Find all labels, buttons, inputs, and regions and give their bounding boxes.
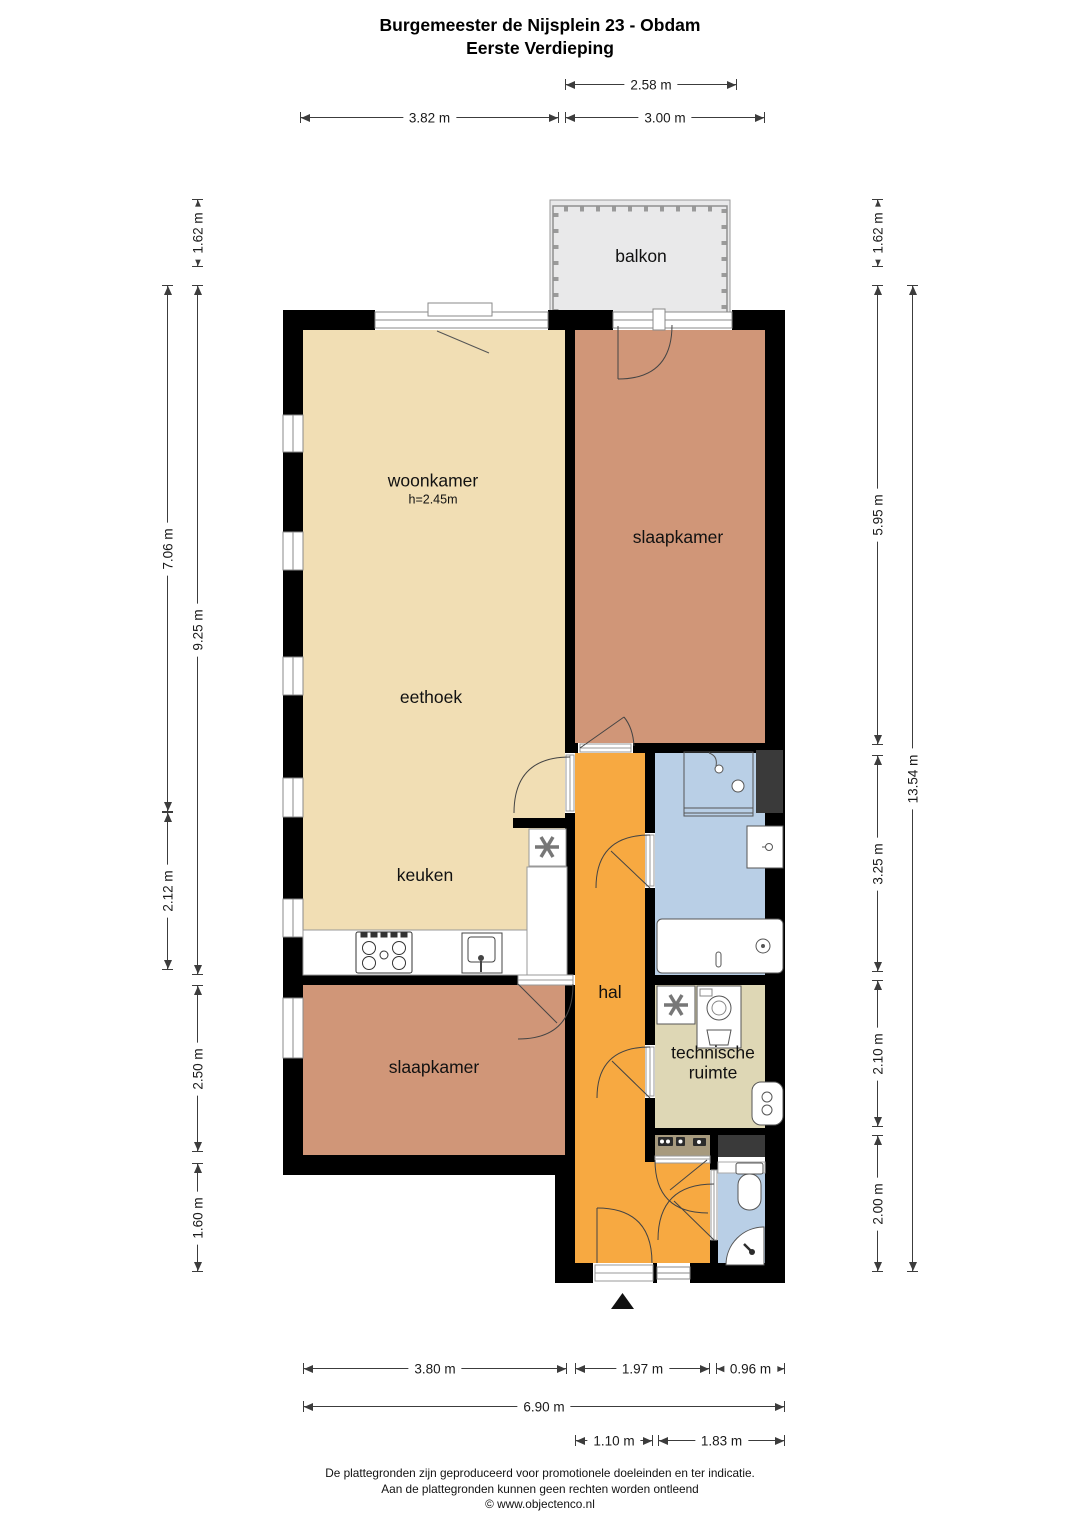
footer-disclaimer: De plattegronden zijn geproduceerd voor … xyxy=(0,1466,1080,1513)
meter-cupboard-icons xyxy=(658,1137,706,1146)
shaft-badkamer xyxy=(756,750,783,813)
entrance-arrow-icon xyxy=(611,1293,634,1309)
room-balkon-fill xyxy=(550,200,730,315)
footer-line-1: De plattegronden zijn geproduceerd voor … xyxy=(0,1466,1080,1482)
bathtub-icon xyxy=(657,919,783,973)
room-hal-fill xyxy=(575,753,645,1263)
room-slaapkamer2-fill xyxy=(303,985,565,1155)
boiler-icon xyxy=(752,1082,783,1125)
ventilation-icon-tech xyxy=(657,986,695,1024)
shaft-meterkast xyxy=(718,1135,765,1157)
sink-icon xyxy=(462,933,502,973)
room-slaapkamer1-fill xyxy=(575,330,765,743)
balcony xyxy=(550,200,730,315)
room-fills xyxy=(303,330,765,1263)
washbasin-icon xyxy=(747,826,783,868)
floorplan-drawing xyxy=(0,0,1080,1527)
stove-icon xyxy=(356,932,412,973)
washing-machine-icon xyxy=(697,986,741,1048)
footer-line-2: Aan de plattegronden kunnen geen rechten… xyxy=(0,1482,1080,1498)
room-woonkamer-fill xyxy=(303,330,565,975)
floorplan-page: Burgemeester de Nijsplein 23 - Obdam Eer… xyxy=(0,0,1080,1527)
footer-copyright: © www.objectenco.nl xyxy=(0,1497,1080,1513)
